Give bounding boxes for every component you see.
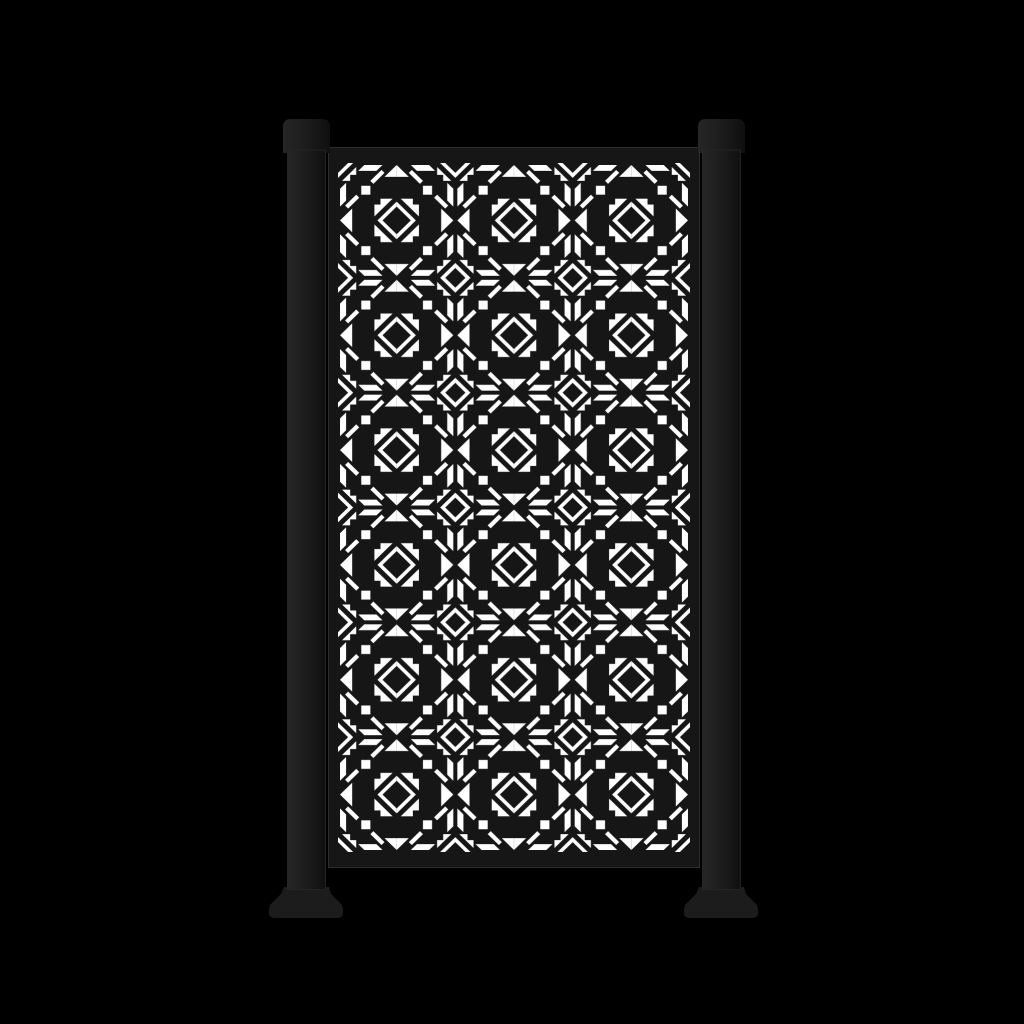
left-post	[287, 150, 326, 890]
product-image-stage	[0, 0, 1024, 1024]
fence-screen-product-image	[0, 0, 1024, 1024]
screen-panel-pattern-area	[338, 163, 690, 852]
left-post-cap	[283, 119, 330, 153]
right-post	[702, 150, 741, 890]
right-post-cap	[698, 119, 745, 153]
